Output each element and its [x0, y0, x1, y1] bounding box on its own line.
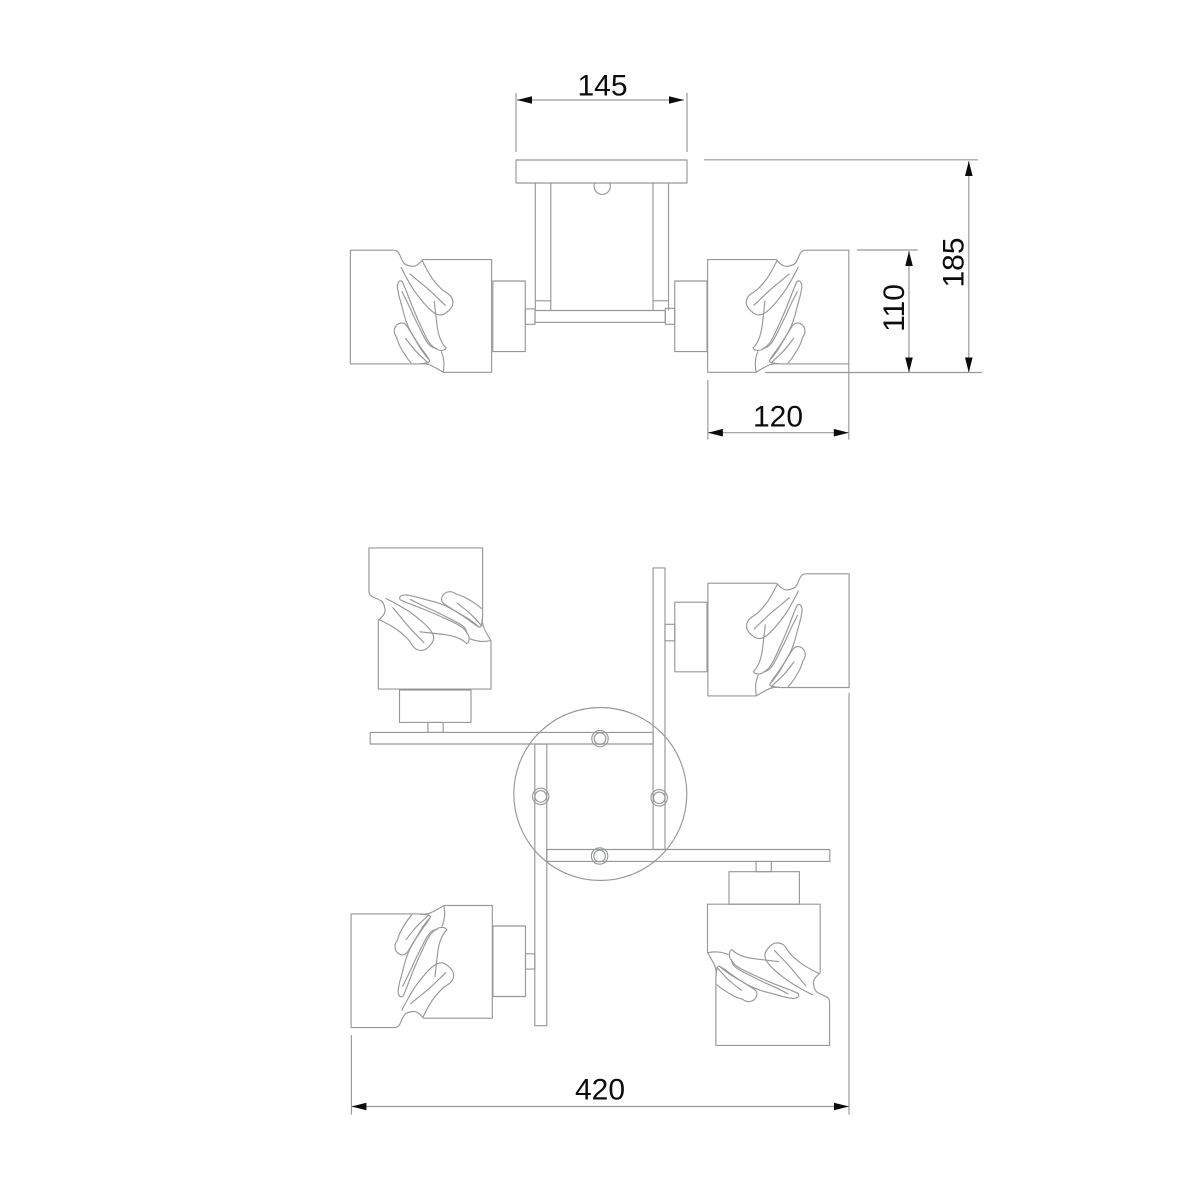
svg-text:120: 120 [753, 401, 803, 434]
svg-text:185: 185 [938, 237, 971, 287]
svg-text:145: 145 [577, 70, 627, 103]
svg-text:110: 110 [878, 284, 911, 332]
svg-text:420: 420 [575, 1074, 625, 1107]
